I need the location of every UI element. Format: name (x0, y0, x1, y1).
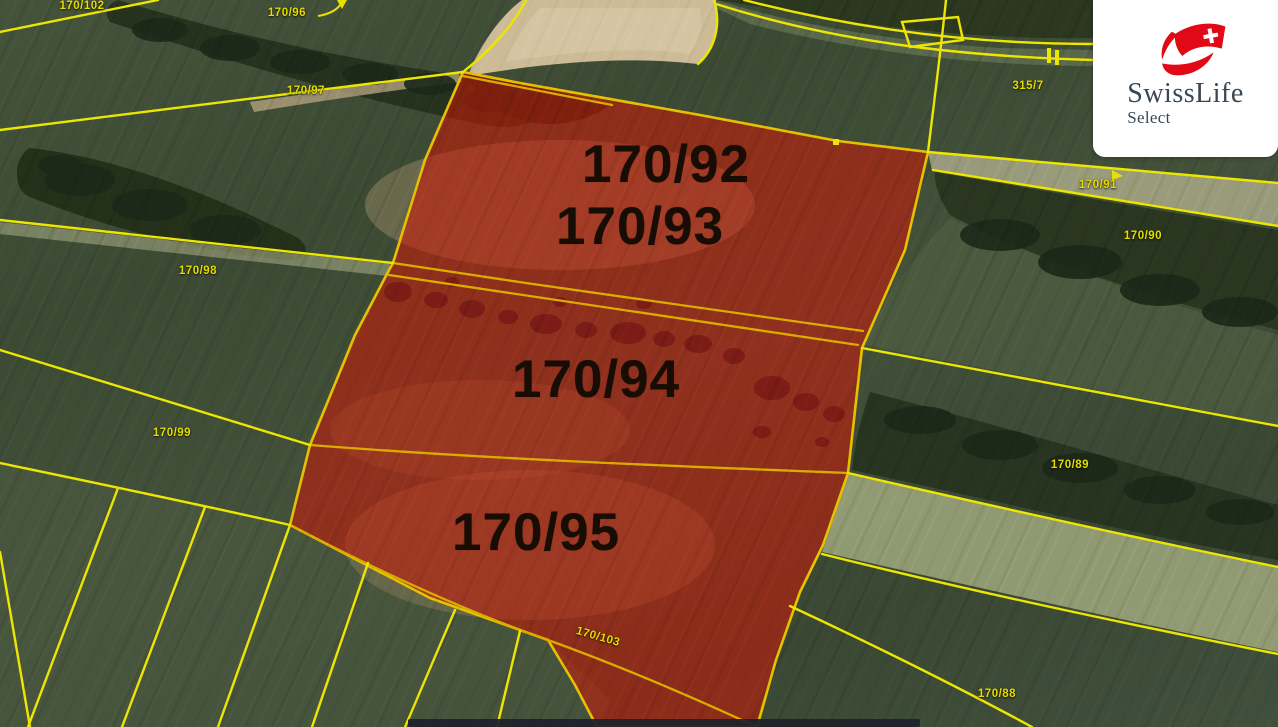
parcel-label: 170/89 (1051, 459, 1089, 471)
vertex-marker-icon (833, 139, 839, 145)
highlighted-parcel-label: 170/92 (582, 138, 750, 191)
bottom-scrollbar[interactable] (408, 719, 920, 727)
parcel-label: 170/102 (59, 0, 104, 12)
parcel-label: 170/97 (287, 85, 325, 97)
parcel-label: 315/7 (1012, 80, 1043, 92)
parcel-label: 170/98 (179, 265, 217, 277)
parcel-label: 170/90 (1124, 230, 1162, 242)
highlighted-parcel-label: 170/93 (556, 200, 724, 253)
brand-name: SwissLife (1127, 80, 1244, 108)
map-viewport[interactable]: 170/92 170/93 170/94 170/95 170/102 170/… (0, 0, 1278, 727)
highlighted-parcel-label: 170/95 (452, 506, 620, 559)
highlighted-parcel-label: 170/94 (512, 353, 680, 406)
swisslife-logo-card: SwissLife Select (1093, 0, 1278, 157)
parcel-label: 170/88 (978, 688, 1016, 700)
parcel-label: 170/91 (1079, 179, 1117, 191)
parcel-label: 170/96 (268, 7, 306, 19)
parcel-label: 170/99 (153, 427, 191, 439)
swisslife-flag-icon (1140, 12, 1232, 78)
curved-arrow-icon (318, 0, 347, 16)
brand-product: Select (1127, 108, 1244, 128)
